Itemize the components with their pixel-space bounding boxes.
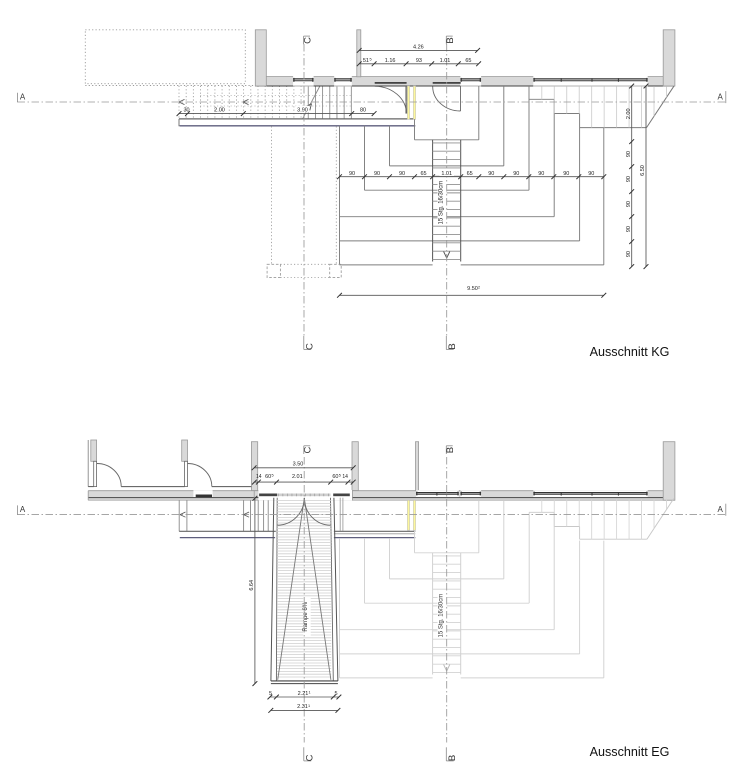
svg-text:90: 90 (374, 171, 380, 177)
svg-text:5: 5 (339, 474, 341, 478)
svg-text:A: A (718, 505, 724, 514)
svg-text:90: 90 (626, 151, 632, 157)
svg-text:90: 90 (626, 226, 632, 232)
svg-text:1.16: 1.16 (385, 58, 396, 64)
svg-text:A: A (20, 505, 26, 514)
svg-text:6.64: 6.64 (249, 580, 255, 591)
svg-text:2.00: 2.00 (214, 108, 225, 114)
svg-text:B: B (445, 37, 456, 43)
svg-text:90: 90 (399, 171, 405, 177)
svg-text:2.01: 2.01 (292, 474, 303, 480)
svg-text:90: 90 (563, 171, 569, 177)
svg-text:2.31: 2.31 (297, 704, 308, 710)
svg-text:65: 65 (465, 58, 471, 64)
svg-text:6.50: 6.50 (640, 165, 646, 176)
svg-text:5: 5 (272, 474, 274, 478)
svg-text:90: 90 (513, 171, 519, 177)
svg-text:30: 30 (183, 108, 189, 114)
svg-text:A: A (20, 92, 26, 101)
svg-text:1: 1 (308, 704, 310, 708)
svg-text:60: 60 (332, 474, 338, 480)
svg-text:90: 90 (538, 171, 544, 177)
svg-text:80: 80 (360, 108, 366, 114)
svg-text:C: C (303, 447, 314, 454)
svg-text:90: 90 (626, 251, 632, 257)
svg-text:93: 93 (416, 58, 422, 64)
svg-text:90: 90 (626, 176, 632, 182)
svg-text:1: 1 (309, 690, 311, 694)
svg-text:B: B (445, 447, 456, 453)
svg-text:4.26: 4.26 (413, 44, 424, 50)
svg-text:C: C (302, 37, 313, 44)
svg-text:B: B (447, 343, 458, 349)
svg-text:14: 14 (256, 474, 262, 480)
svg-text:Ausschnitt EG: Ausschnitt EG (590, 745, 670, 759)
svg-text:Ausschnitt KG: Ausschnitt KG (590, 345, 670, 359)
svg-text:A: A (718, 92, 724, 101)
svg-text:3.90: 3.90 (297, 108, 308, 114)
svg-text:15 Stg. 16/30cm: 15 Stg. 16/30cm (439, 181, 445, 225)
svg-text:2.21: 2.21 (298, 691, 309, 697)
svg-text:90: 90 (588, 171, 594, 177)
svg-text:1.01: 1.01 (441, 171, 452, 177)
svg-text:15 Stg. 16/30cm: 15 Stg. 16/30cm (439, 594, 445, 638)
svg-text:90: 90 (349, 171, 355, 177)
svg-text:60: 60 (265, 474, 271, 480)
svg-text:51: 51 (363, 58, 369, 64)
svg-text:2.00: 2.00 (626, 108, 632, 119)
svg-text:14: 14 (342, 474, 348, 480)
svg-text:90: 90 (626, 201, 632, 207)
svg-text:5: 5 (334, 691, 337, 697)
svg-text:3.50: 3.50 (293, 461, 304, 467)
svg-text:C: C (305, 754, 316, 761)
svg-text:B: B (447, 755, 458, 761)
svg-text:90: 90 (488, 171, 494, 177)
svg-text:5: 5 (370, 57, 372, 61)
svg-text:5: 5 (269, 691, 272, 697)
svg-text:65: 65 (420, 171, 426, 177)
svg-text:C: C (305, 343, 316, 350)
svg-text:1.01: 1.01 (440, 58, 451, 64)
svg-text:2: 2 (478, 286, 480, 290)
svg-text:9.50: 9.50 (467, 286, 478, 292)
svg-text:65: 65 (467, 171, 473, 177)
